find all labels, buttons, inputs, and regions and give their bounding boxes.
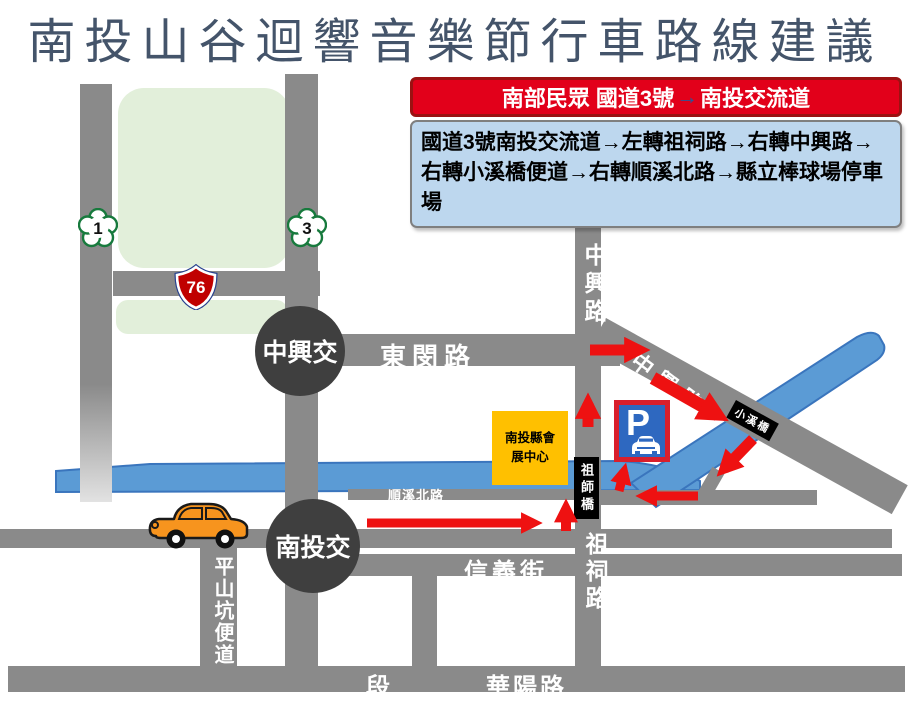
bridge-zushi: 祖師橋 [574, 457, 599, 519]
route-directions-line1: 國道3號南投交流道→左轉祖祠路→右轉中興路→ [421, 128, 891, 158]
banner-prefix: 南部民眾 國道3號 [502, 81, 674, 113]
parking-sign: P [614, 400, 670, 462]
junction-nantou-interchange: 南投交 [266, 499, 360, 593]
road-label-huayang: 華陽路 [486, 667, 567, 701]
road-label-xinyi: 信義街 [464, 552, 548, 587]
national-highway-3-shield-icon: 3 [287, 208, 327, 250]
car-illustration [146, 494, 254, 550]
road-shunxi-north [348, 489, 576, 500]
banner-suffix: 南投交流道 [700, 81, 810, 113]
river-horizontal [56, 461, 700, 492]
road-label-pingshankeng: 平山坑便道 [208, 556, 237, 666]
expressway-76-shield-icon: 76 [174, 264, 218, 310]
banner-arrow-icon: → [674, 84, 700, 110]
national-highway-1-shield-icon: 1 [78, 208, 118, 250]
page-title: 南投山谷迴響音樂節行車路線建議 [0, 2, 910, 72]
route-directions-box: 國道3號南投交流道→左轉祖祠路→右轉中興路→ 右轉小溪橋便道→右轉順溪北路→縣立… [410, 120, 902, 228]
route-map-page: 東閔路 中興路 中興路 順溪北路 祖祠路 信義街 平山坑便道 段 華陽路 中興交… [0, 0, 910, 701]
road-label-zuci: 祖祠路 [578, 532, 612, 613]
junction-nantou-label: 南投交 [275, 528, 350, 564]
road-national-3 [285, 74, 318, 520]
venue-label-line2: 展中心 [511, 448, 549, 467]
road-side-street [412, 576, 437, 666]
road-label-duan: 段 [366, 667, 390, 701]
venue-label-line1: 南投縣會 [505, 429, 555, 448]
venue-exhibition-center: 南投縣會 展中心 [492, 411, 568, 485]
junction-zhongxing-interchange: 中興交 [255, 306, 345, 396]
road-national-1-fade [80, 384, 112, 502]
national-highway-3-number: 3 [302, 219, 311, 238]
road-label-zhongxing-north: 中興路 [577, 243, 611, 327]
south-route-banner: 南部民眾 國道3號→南投交流道 [410, 77, 902, 117]
junction-zhongxing-label: 中興交 [262, 333, 337, 369]
route-directions-line3: 場 [421, 188, 891, 218]
parking-car-icon [628, 434, 664, 456]
expressway-76-number: 76 [187, 278, 206, 297]
national-highway-1-number: 1 [93, 219, 102, 238]
road-label-dongmin: 東閔路 [380, 337, 476, 374]
route-directions-line2: 右轉小溪橋便道→右轉順溪北路→縣立棒球場停車 [421, 158, 891, 188]
road-label-shunxi-north: 順溪北路 [388, 485, 444, 504]
road-huayang [8, 666, 905, 692]
road-main-horizontal [0, 529, 892, 548]
